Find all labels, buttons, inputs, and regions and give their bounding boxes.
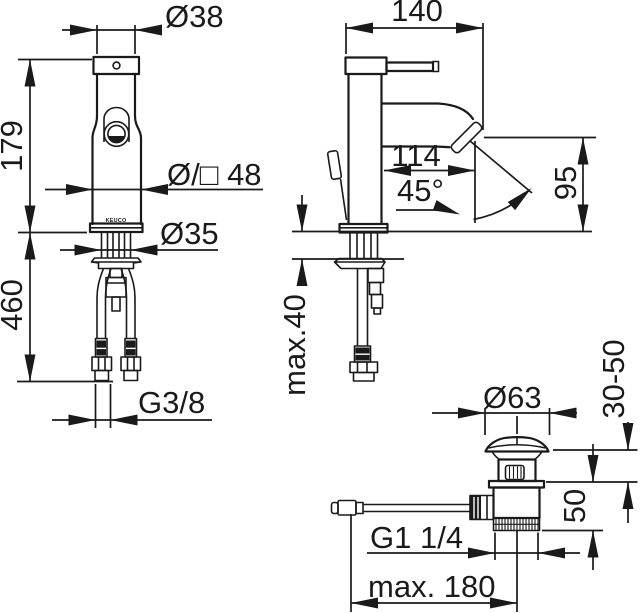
drain-rod-tip bbox=[332, 503, 339, 514]
side-linkage-block-1 bbox=[368, 269, 384, 283]
technical-drawing-page: KEUCO Ø38 179 bbox=[0, 0, 640, 613]
front-left-nut-facets bbox=[99, 357, 106, 371]
side-mounting-flange bbox=[335, 259, 386, 269]
side-body bbox=[349, 74, 382, 224]
dim-front-hose-length: 460 bbox=[0, 279, 29, 331]
dim-front-height: 179 bbox=[0, 120, 29, 172]
dim-side-spout-angle: 45° bbox=[397, 173, 444, 208]
side-shank bbox=[350, 233, 378, 259]
side-hose-nut-facets bbox=[358, 362, 368, 373]
front-aerator-face bbox=[108, 136, 124, 143]
front-mount-stem bbox=[110, 269, 122, 278]
drain-rod-knob bbox=[338, 501, 356, 516]
front-right-nut-tip bbox=[124, 371, 138, 381]
dim-front-body-size: Ø/□ 48 bbox=[167, 157, 262, 192]
front-mount-bracket bbox=[106, 278, 126, 298]
drain-rod-connector-knurl bbox=[471, 496, 482, 519]
front-body-right-edge bbox=[135, 74, 141, 224]
front-right-nut bbox=[121, 357, 141, 371]
dim-drain-plug-diameter: Ø63 bbox=[483, 380, 542, 415]
front-top-cap bbox=[94, 57, 140, 74]
dim-side-spout-reach: 114 bbox=[391, 138, 440, 173]
dim-drain-thread-length: 50 bbox=[557, 489, 592, 523]
side-stream-line bbox=[470, 141, 533, 194]
front-view-dimensions: Ø38 179 Ø/□ 48 Ø35 460 G3/8 bbox=[0, 0, 263, 428]
drain-view-dimensions: Ø63 30-50 50 G1 1/4 max. 180 bbox=[351, 339, 638, 612]
drain-plug-cap-inner bbox=[489, 445, 546, 448]
front-body-left-edge bbox=[93, 74, 98, 224]
side-pullrod-knob bbox=[327, 150, 341, 179]
drain-overflow-slot-hatch bbox=[510, 467, 522, 479]
dim-front-shank-diameter: Ø35 bbox=[160, 216, 219, 251]
side-spout-outlet-face bbox=[450, 121, 483, 154]
front-shank bbox=[102, 232, 131, 258]
dim-front-top-diameter: Ø38 bbox=[165, 0, 224, 34]
faucet-dimension-drawing: KEUCO Ø38 179 bbox=[0, 0, 640, 613]
dim-side-depth: 140 bbox=[391, 0, 443, 28]
drain-thread-hatch bbox=[494, 519, 540, 530]
front-mounting-flange bbox=[92, 258, 142, 269]
side-depth-lines bbox=[346, 23, 483, 130]
drain-rod-collar bbox=[356, 503, 363, 514]
front-mount-rod bbox=[112, 297, 120, 311]
side-linkage-block-3 bbox=[372, 295, 383, 309]
side-hose bbox=[358, 269, 368, 347]
dim-front-supply-thread: G3/8 bbox=[138, 385, 205, 420]
side-pullrod bbox=[341, 179, 347, 220]
dim-drain-rod-reach: max. 180 bbox=[368, 569, 496, 604]
side-view-faucet bbox=[292, 58, 592, 382]
side-hose-nut bbox=[350, 362, 378, 373]
drain-rod bbox=[363, 505, 470, 512]
side-view-dimensions: 140 114 45° 95 max.40 bbox=[277, 0, 596, 396]
front-view-faucet: KEUCO bbox=[90, 57, 143, 381]
front-left-nut-tip bbox=[95, 371, 109, 381]
side-hose-nut-tip bbox=[354, 373, 375, 382]
side-top-cap bbox=[346, 58, 387, 75]
dim-drain-clamp-range: 30-50 bbox=[596, 339, 631, 418]
front-hose-left bbox=[97, 269, 111, 340]
side-lever bbox=[387, 63, 434, 72]
front-lever-pivot bbox=[113, 62, 120, 69]
dim-side-outlet-height: 95 bbox=[548, 166, 583, 200]
front-right-nut-facets bbox=[128, 357, 135, 371]
dim-drain-waste-thread: G1 1/4 bbox=[370, 520, 463, 555]
drain-plug-waist bbox=[492, 452, 542, 460]
side-linkage-block-4 bbox=[374, 308, 381, 314]
drain-mid-body bbox=[494, 488, 540, 519]
side-linkage-block-2 bbox=[370, 283, 381, 295]
side-spout-top bbox=[382, 104, 474, 120]
front-left-nut bbox=[92, 357, 112, 371]
dim-side-deck-max: max.40 bbox=[277, 294, 312, 396]
front-hose-right bbox=[121, 269, 135, 340]
